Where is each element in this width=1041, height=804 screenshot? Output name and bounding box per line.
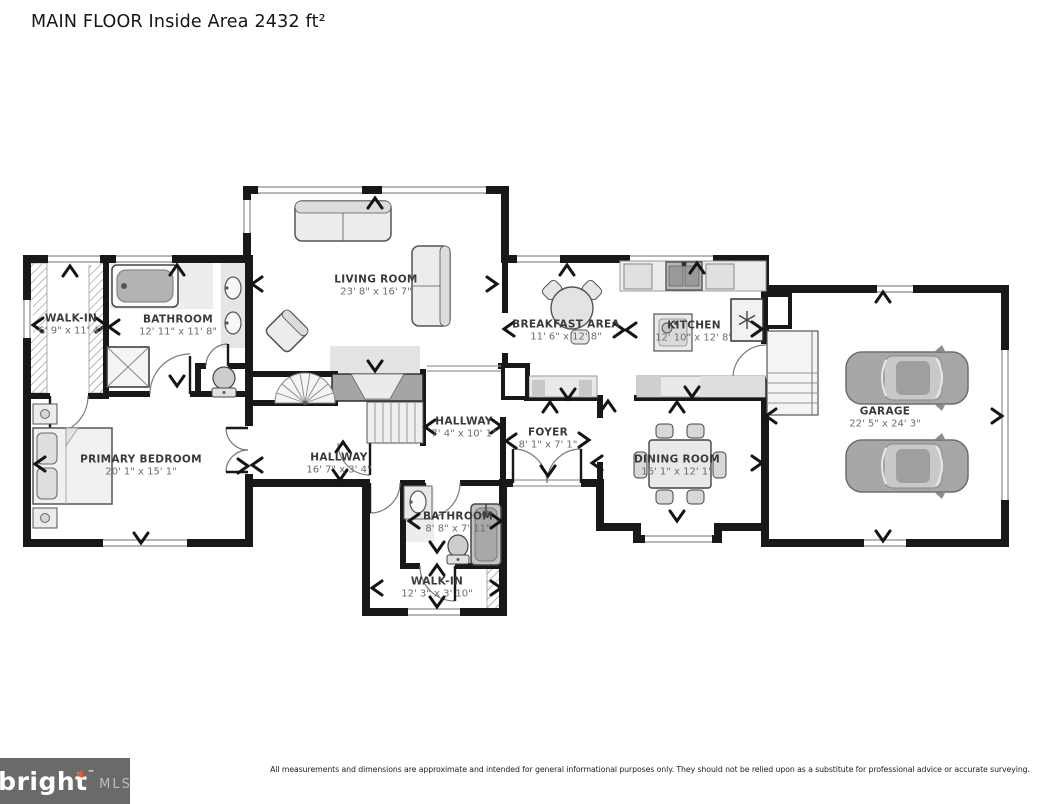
dining-table [634,424,726,504]
breakfast-table [541,279,604,344]
floor-plan-page: MAIN FLOOR Inside Area 2432 ft² [0,0,1041,804]
bathtub [112,265,178,307]
trademark-symbol: ™ [88,769,96,777]
car [846,433,968,499]
toilet [212,367,236,397]
floor-plan-drawing [0,0,1041,804]
brightmls-logo: bright™ MLS [0,758,130,804]
loveseat [412,246,450,326]
winder-stairs-fan [275,373,335,405]
armchair [264,308,309,353]
staircase [367,402,423,443]
stairs-to-basement [332,374,423,401]
disclaimer-text: All measurements and dimensions are appr… [270,765,1030,774]
refrigerator [731,299,763,341]
brand-wordmark: bright [0,767,88,796]
toilet [447,535,469,564]
shower-tub [471,504,501,565]
kitchen-island [654,314,692,351]
bed [33,428,112,504]
brand-mls-text: MLS [99,777,132,792]
shower [107,347,149,387]
garage-stairs [767,331,818,415]
sofa [295,201,391,241]
car [846,345,968,411]
closet [503,366,527,398]
